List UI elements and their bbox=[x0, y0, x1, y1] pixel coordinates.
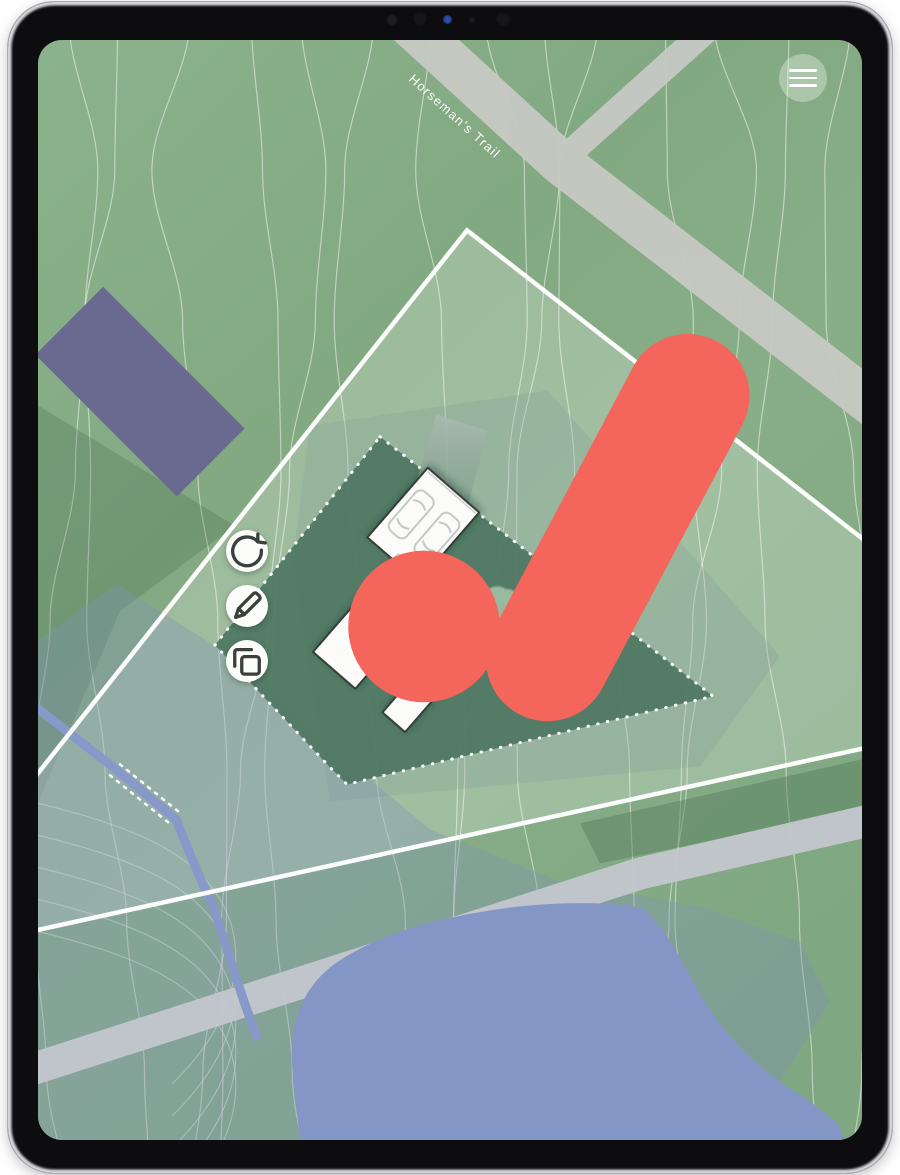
site-tools bbox=[226, 530, 268, 682]
duplicate-icon bbox=[226, 640, 268, 682]
logo-bar bbox=[548, 396, 688, 660]
edit-button[interactable] bbox=[226, 585, 268, 627]
rotate-icon bbox=[226, 530, 268, 572]
brand-logo[interactable] bbox=[78, 60, 862, 1140]
duplicate-button[interactable] bbox=[226, 640, 268, 682]
logo-dot bbox=[348, 551, 500, 703]
sensor-dot bbox=[387, 15, 397, 25]
app-screen: Horseman's Trail bbox=[38, 40, 862, 1140]
rotate-button[interactable] bbox=[226, 530, 268, 572]
page: Horseman's Trail bbox=[0, 0, 900, 1175]
hamburger-icon bbox=[789, 77, 817, 80]
hamburger-icon bbox=[789, 69, 817, 72]
menu-button[interactable] bbox=[779, 54, 827, 102]
camera-lens-2 bbox=[495, 11, 511, 27]
sensor-dot-small bbox=[469, 17, 475, 23]
camera-lens bbox=[412, 11, 428, 27]
hamburger-icon bbox=[789, 84, 817, 87]
pencil-icon bbox=[226, 585, 268, 627]
tablet-frame: Horseman's Trail bbox=[8, 2, 892, 1173]
truedepth-dot bbox=[443, 15, 452, 24]
